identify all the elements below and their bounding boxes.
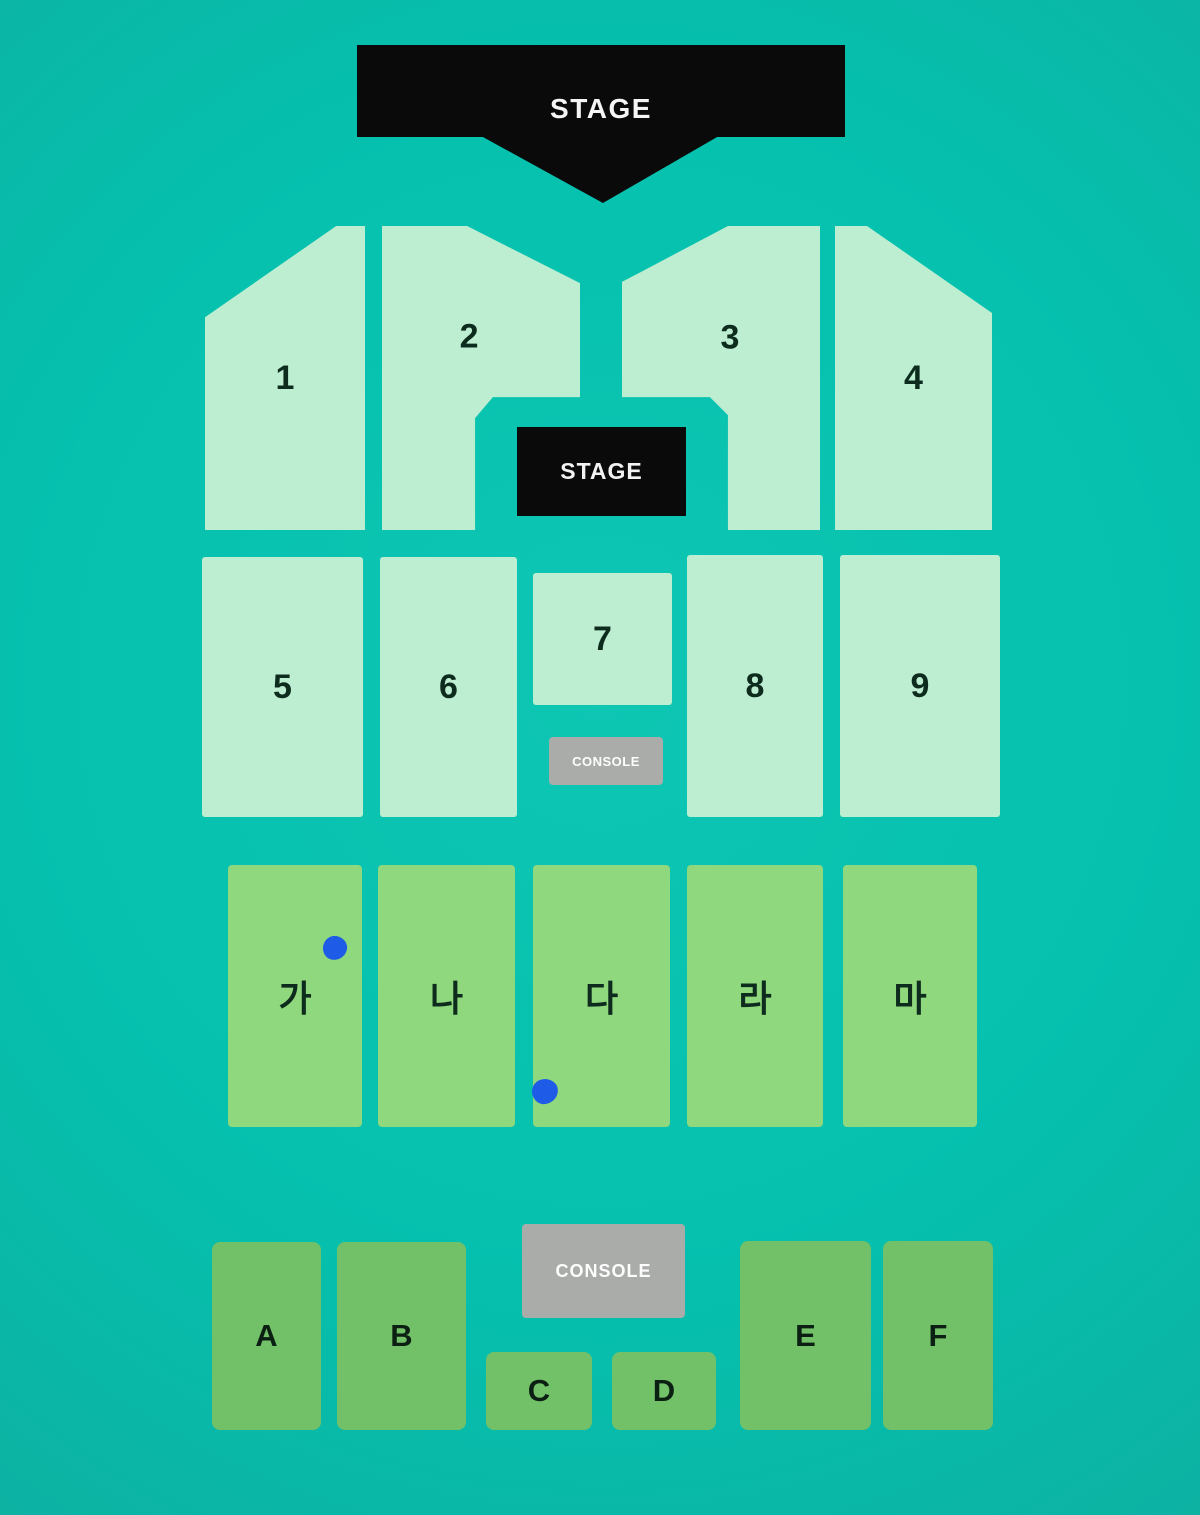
section-2-label: 2 (460, 317, 479, 356)
stage-banner-label: STAGE (550, 93, 652, 125)
inner-stage-banner: STAGE (517, 427, 686, 516)
console-upper: CONSOLE (549, 737, 663, 785)
section-ga-label: 가 (278, 970, 311, 1022)
section-8[interactable]: 8 (687, 555, 823, 817)
section-9-label: 9 (911, 667, 930, 706)
section-4[interactable]: 4 (835, 226, 992, 530)
section-7-label: 7 (593, 620, 612, 659)
stage-banner: STAGE (357, 45, 845, 203)
section-na[interactable]: 나 (378, 865, 515, 1127)
section-d[interactable]: D (612, 1352, 716, 1430)
section-c-label: C (528, 1373, 550, 1409)
section-b[interactable]: B (337, 1242, 466, 1430)
section-1-label: 1 (276, 359, 295, 398)
section-ra-label: 라 (738, 970, 771, 1022)
section-d-label: D (653, 1373, 675, 1409)
section-a[interactable]: A (212, 1242, 321, 1430)
section-5[interactable]: 5 (202, 557, 363, 817)
section-b-label: B (390, 1318, 412, 1354)
section-5-label: 5 (273, 668, 292, 707)
section-e[interactable]: E (740, 1241, 871, 1430)
section-ra[interactable]: 라 (687, 865, 823, 1127)
console-upper-label: CONSOLE (572, 754, 640, 769)
section-1[interactable]: 1 (205, 226, 365, 530)
section-da-label: 다 (585, 970, 618, 1022)
section-3-label: 3 (720, 319, 739, 358)
section-e-label: E (795, 1318, 816, 1354)
section-c[interactable]: C (486, 1352, 592, 1430)
section-ma[interactable]: 마 (843, 865, 977, 1127)
console-lower-label: CONSOLE (555, 1261, 651, 1282)
section-8-label: 8 (746, 667, 765, 706)
section-9[interactable]: 9 (840, 555, 1000, 817)
section-7[interactable]: 7 (533, 573, 672, 705)
inner-stage-label: STAGE (560, 458, 643, 485)
section-a-label: A (255, 1318, 277, 1354)
console-lower: CONSOLE (522, 1224, 685, 1318)
section-4-label: 4 (904, 359, 923, 398)
section-ma-label: 마 (893, 970, 926, 1022)
section-6-label: 6 (439, 668, 458, 707)
section-f-label: F (929, 1318, 948, 1354)
seat-map: STAGE 1 2 3 4 STAGE 5 6 7 8 9 CONSOLE 가 … (0, 0, 1200, 1515)
section-6[interactable]: 6 (380, 557, 517, 817)
section-na-label: 나 (430, 970, 463, 1022)
section-ga[interactable]: 가 (228, 865, 362, 1127)
section-f[interactable]: F (883, 1241, 993, 1430)
